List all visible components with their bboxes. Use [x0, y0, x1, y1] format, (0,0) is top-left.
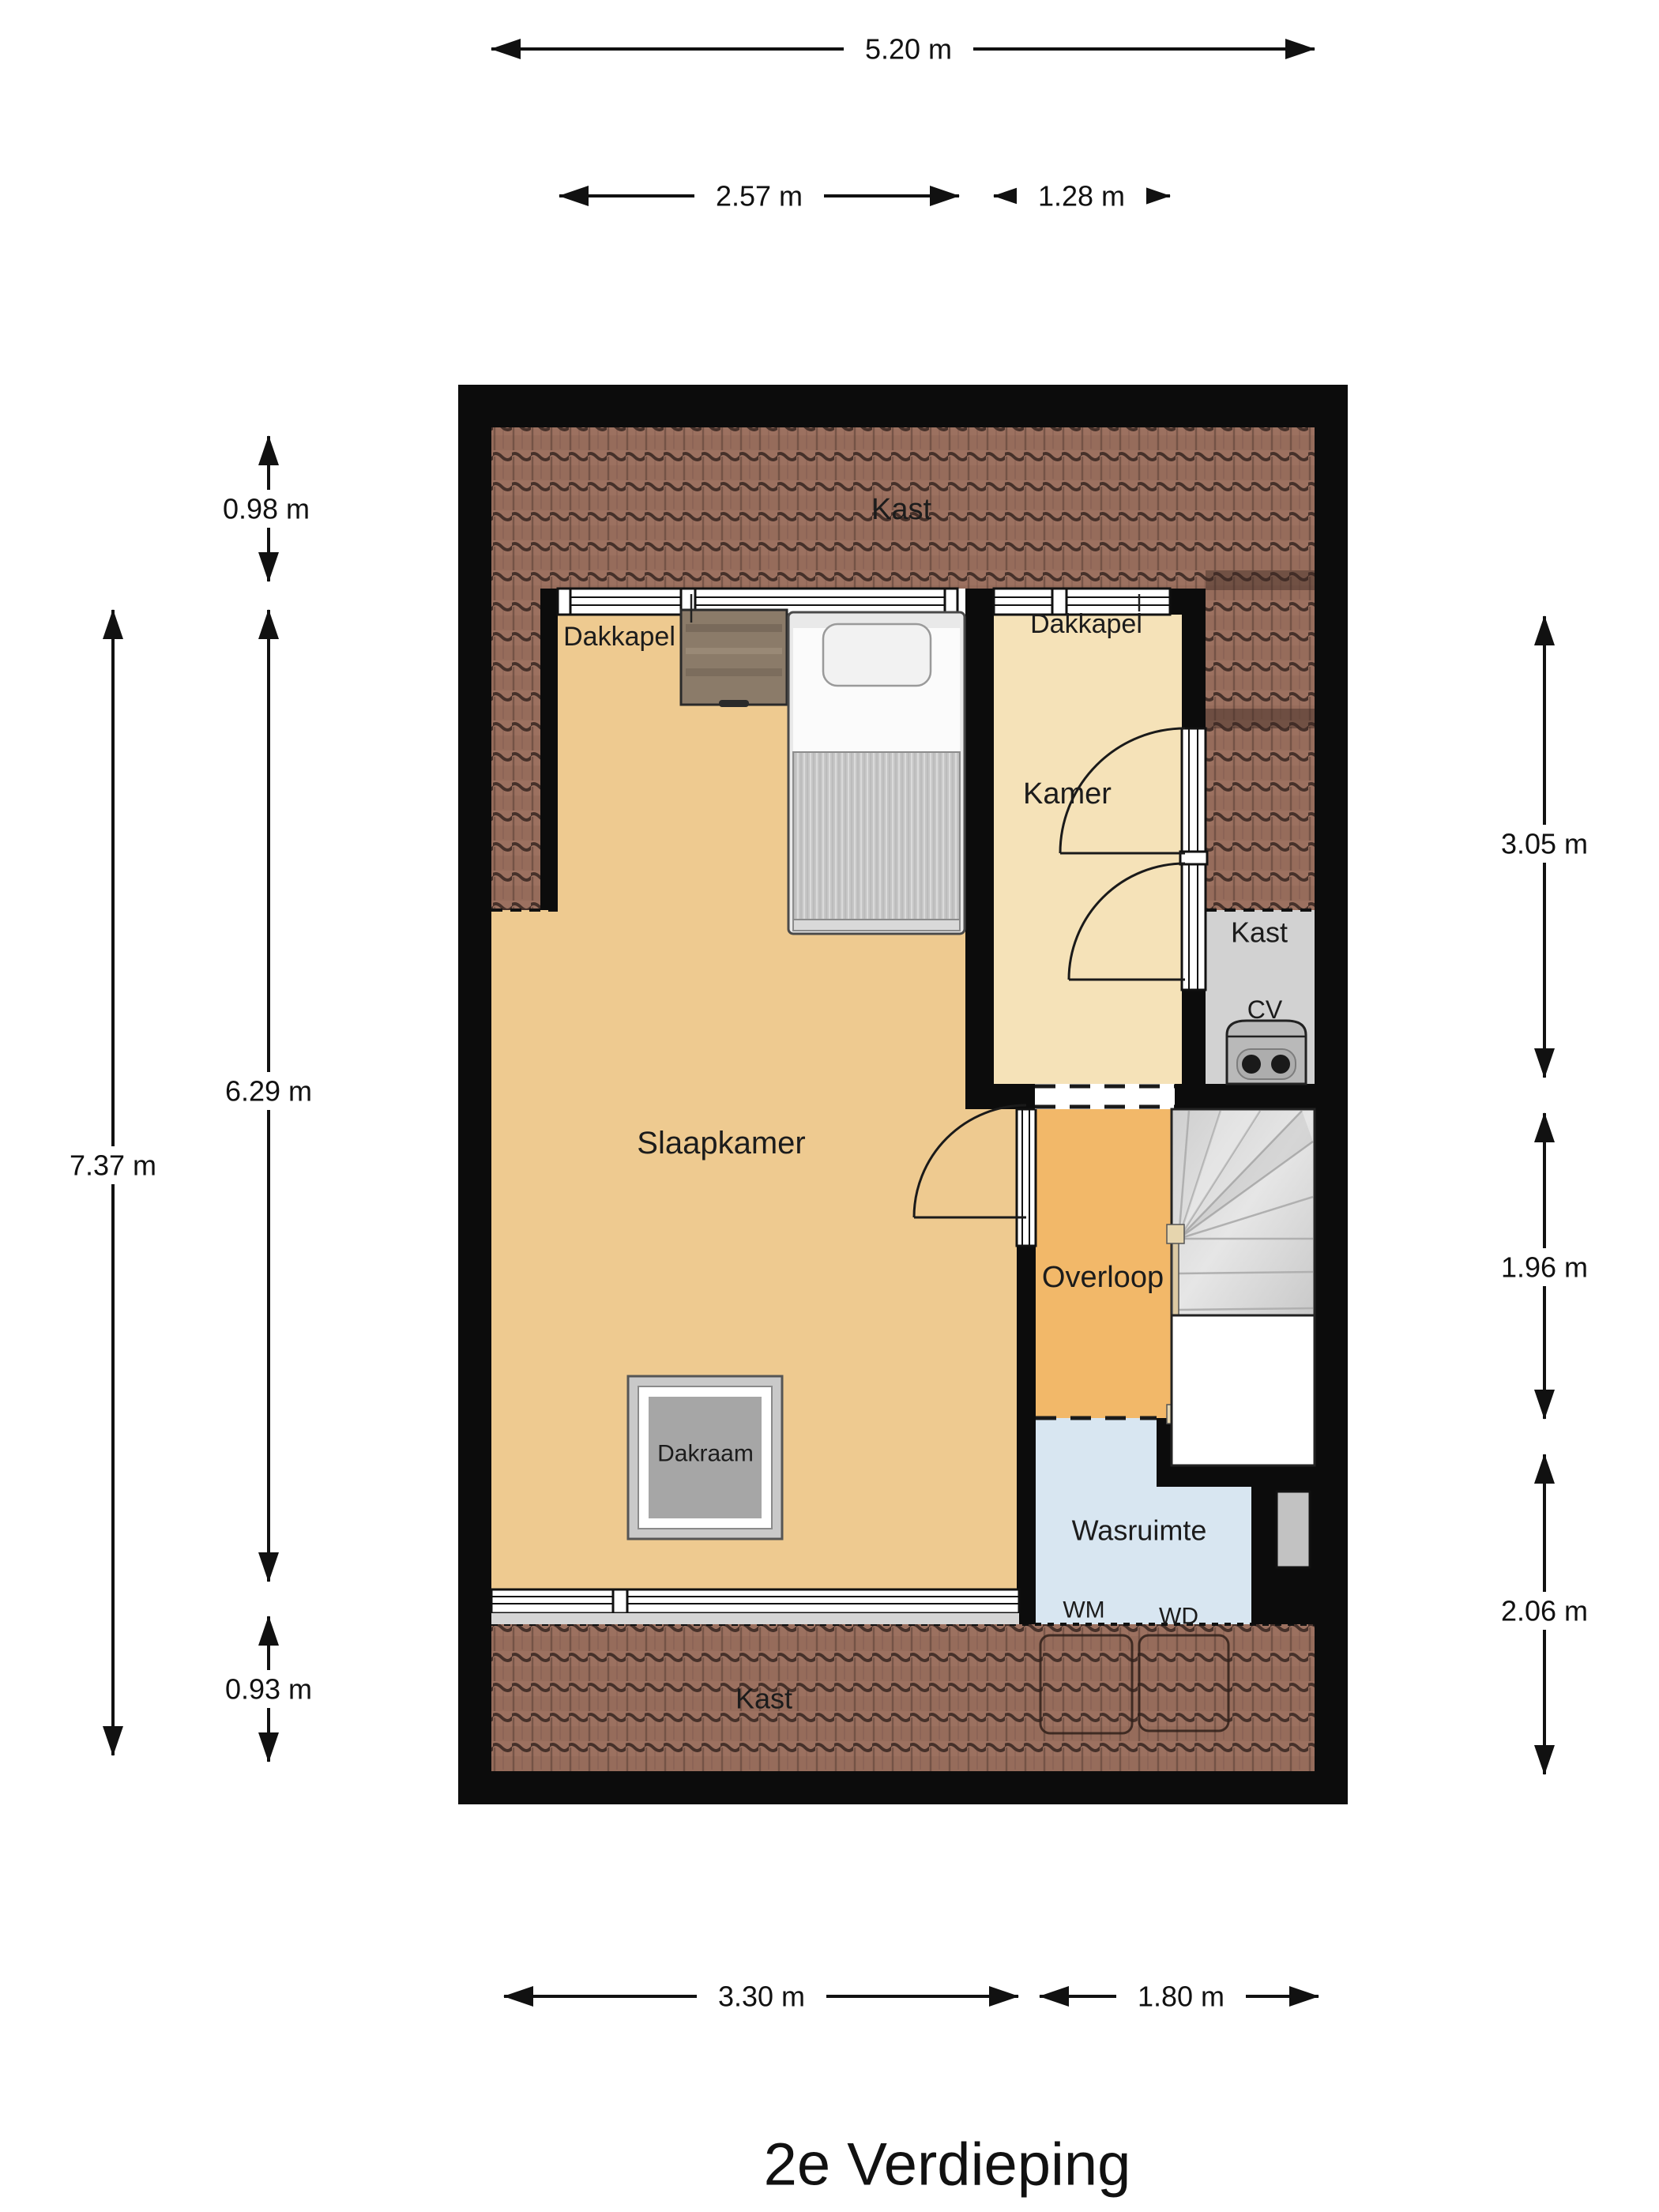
dim-top-left-window: 2.57 m [559, 177, 959, 215]
dim-label-left-top: 0.98 m [223, 493, 310, 525]
wall-kamer-right-lower [1182, 990, 1206, 1084]
duct-shaft [1277, 1492, 1310, 1567]
doorframe-kamer [1180, 728, 1207, 990]
bed-pillow [823, 624, 931, 686]
window-sill [491, 1613, 1019, 1624]
desk-handle [719, 700, 749, 707]
cv-boiler [1227, 1021, 1306, 1084]
floorplan-canvas: Kast Dakkapel Dakkapel Kamer Kast CV Sla… [0, 0, 1659, 2212]
floorplan-page: Kast Dakkapel Dakkapel Kamer Kast CV Sla… [0, 0, 1659, 2212]
floor-title: 2e Verdieping [764, 2131, 1131, 2199]
stair-newel-top [1167, 1224, 1184, 1243]
desk [681, 610, 787, 707]
window-slaapkamer-bottom [491, 1589, 1019, 1624]
roof-bottom-kast [491, 1624, 1315, 1771]
wall-slaapkamer-kamer [965, 589, 994, 1084]
dim-label-top-right-window: 1.28 m [1038, 180, 1125, 213]
slaapkamer-floor-right [965, 1109, 1017, 1589]
label-dakkapel-right: Dakkapel [1030, 609, 1142, 639]
dim-left-bottom: 0.93 m [201, 1616, 336, 1762]
wall-stub-left-dakkapel [540, 589, 558, 910]
doorframe-slaapkamer [1017, 1109, 1036, 1246]
dim-top-total: 5.20 m [491, 30, 1315, 68]
label-slaapkamer: Slaapkamer [637, 1126, 805, 1161]
wall-kamer-right-upper [1182, 589, 1206, 728]
roof-shade-band-2 [1206, 709, 1315, 728]
dim-left-top: 0.98 m [199, 436, 333, 581]
stair-void [1172, 1315, 1315, 1465]
label-wm: WM [1063, 1597, 1104, 1623]
label-kast-cv: Kast [1231, 916, 1288, 949]
dim-label-left-middle: 6.29 m [225, 1075, 312, 1108]
slaapkamer-floor-left [491, 910, 558, 1589]
dim-right-top: 3.05 m [1477, 616, 1612, 1078]
dim-label-bottom-right: 1.80 m [1138, 1981, 1224, 2013]
wall-outer-right [1315, 385, 1348, 1804]
wall-outer-left [458, 385, 491, 1804]
label-overloop: Overloop [1042, 1261, 1164, 1294]
dim-right-middle: 1.96 m [1477, 1113, 1612, 1419]
dim-top-right-window: 1.28 m [994, 177, 1170, 215]
wall-outer-bottom [458, 1771, 1348, 1804]
roof-shade-band-1 [1206, 570, 1315, 590]
dim-left-middle: 6.29 m [201, 610, 336, 1582]
label-dakraam: Dakraam [657, 1441, 754, 1467]
label-kamer: Kamer [1023, 777, 1112, 811]
kamer-floor [994, 615, 1182, 1084]
dim-label-left-bottom: 0.93 m [225, 1673, 312, 1706]
wall-above-stairs [1175, 1084, 1315, 1109]
bed-blanket [793, 752, 960, 920]
label-kast-bottom: Kast [735, 1683, 792, 1715]
label-cv: CV [1247, 995, 1283, 1024]
label-wd: WD [1159, 1604, 1198, 1630]
dim-bottom-left: 3.30 m [504, 1977, 1018, 2015]
dim-label-right-bottom: 2.06 m [1501, 1595, 1588, 1627]
dim-label-left-outer-total: 7.37 m [70, 1149, 156, 1182]
dim-label-bottom-left: 3.30 m [718, 1981, 805, 2013]
roof-left-strip [491, 589, 540, 910]
label-wasruimte: Wasruimte [1072, 1514, 1207, 1547]
passage-kamer-overloop [1035, 1084, 1175, 1109]
dim-left-outer-total: 7.37 m [46, 610, 180, 1755]
dim-label-right-top: 3.05 m [1501, 828, 1588, 860]
roof-right-strip [1206, 589, 1315, 910]
dim-label-right-middle: 1.96 m [1501, 1251, 1588, 1284]
wall-wasruimte-right [1251, 1487, 1273, 1624]
label-kast-top: Kast [871, 493, 931, 526]
wall-outer-top [458, 385, 1348, 427]
label-dakkapel-left: Dakkapel [563, 622, 675, 652]
bed-footboard [793, 920, 960, 931]
wall-void-bottom [1175, 1465, 1315, 1487]
bed [788, 612, 965, 934]
wall-overloop-left [1017, 1246, 1036, 1624]
stairs [1167, 1109, 1315, 1465]
dim-right-bottom: 2.06 m [1477, 1454, 1612, 1774]
dim-label-top-total: 5.20 m [865, 33, 952, 66]
dim-label-top-left-window: 2.57 m [716, 180, 803, 213]
wasruimte-floor-upper [1036, 1418, 1157, 1487]
dim-bottom-right: 1.80 m [1040, 1977, 1319, 2015]
